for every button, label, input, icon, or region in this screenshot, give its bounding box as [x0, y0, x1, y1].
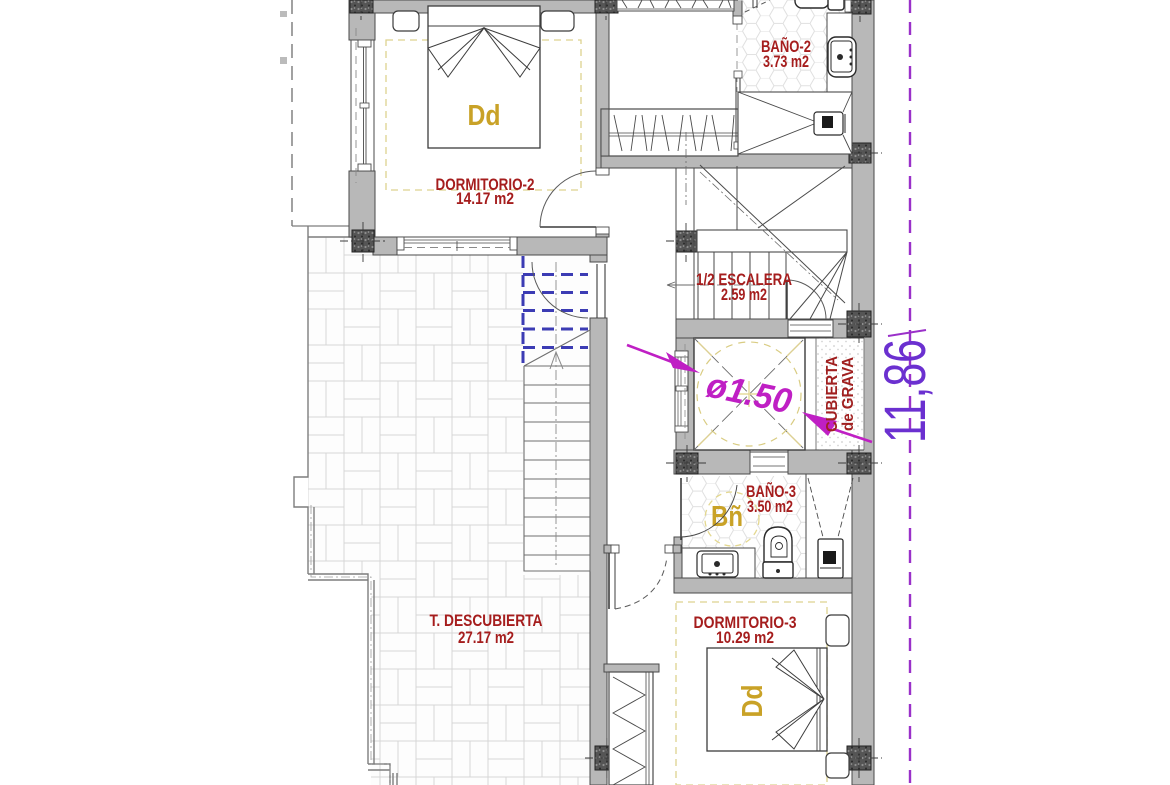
- svg-text:27.17 m2: 27.17 m2: [458, 628, 514, 647]
- svg-text:CUBIERTA: CUBIERTA: [824, 356, 841, 432]
- svg-text:2.59 m2: 2.59 m2: [721, 285, 767, 304]
- svg-text:Dd: Dd: [737, 685, 769, 718]
- svg-text:de GRAVA: de GRAVA: [840, 357, 857, 431]
- svg-text:10.29 m2: 10.29 m2: [716, 628, 774, 647]
- svg-text:Dd: Dd: [468, 100, 501, 132]
- svg-text:11,86: 11,86: [873, 339, 938, 443]
- svg-text:3.50 m2: 3.50 m2: [747, 497, 793, 516]
- svg-text:3.73 m2: 3.73 m2: [763, 52, 809, 71]
- svg-text:Bñ: Bñ: [711, 501, 743, 533]
- svg-text:14.17 m2: 14.17 m2: [456, 189, 514, 208]
